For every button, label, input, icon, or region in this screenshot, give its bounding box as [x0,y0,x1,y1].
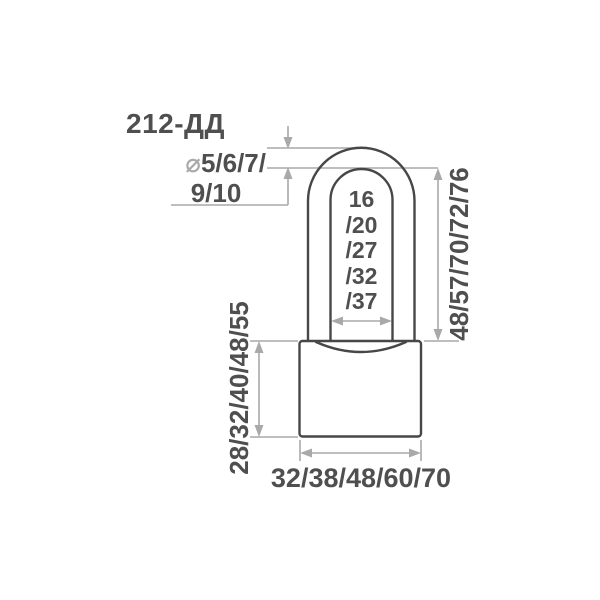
arrow-up-icon [255,341,264,353]
arrow-left-icon [331,317,343,326]
diagram-drawing [0,0,600,600]
body-outline [300,341,422,437]
body-width-label: 32/38/48/60/70 [261,465,461,492]
shackle-height-label: 48/57/70/72/76 [446,154,474,354]
inner-width-value: /37 [311,289,412,315]
shackle-diameter-label-line2: 9/10 [166,180,266,206]
diameter-symbol-icon: ⌀ [185,148,201,178]
shackle-diameter-values: 5/6/7/ [201,148,266,178]
padlock-diagram: 212-ДД ⌀5/6/7/ 9/10 16 /20 /27 /32 /37 4… [0,0,600,600]
shackle-diameter-label: ⌀5/6/7/ [166,150,266,176]
arrow-down-icon [434,329,443,341]
inner-width-value: /20 [311,213,412,239]
model-number: 212-ДД [126,110,225,138]
arrow-right-icon [380,317,392,326]
inner-width-value: /27 [311,238,412,264]
inner-width-value: /32 [311,264,412,290]
arrow-up-icon [434,168,443,180]
inner-width-value: 16 [311,187,412,213]
arrow-down-icon [255,425,264,437]
arrow-left-icon [300,449,312,458]
shackle-inner-width-values: 16 /20 /27 /32 /37 [311,187,412,315]
arrow-right-icon [409,449,421,458]
body-height-label: 28/32/40/48/55 [226,288,254,488]
